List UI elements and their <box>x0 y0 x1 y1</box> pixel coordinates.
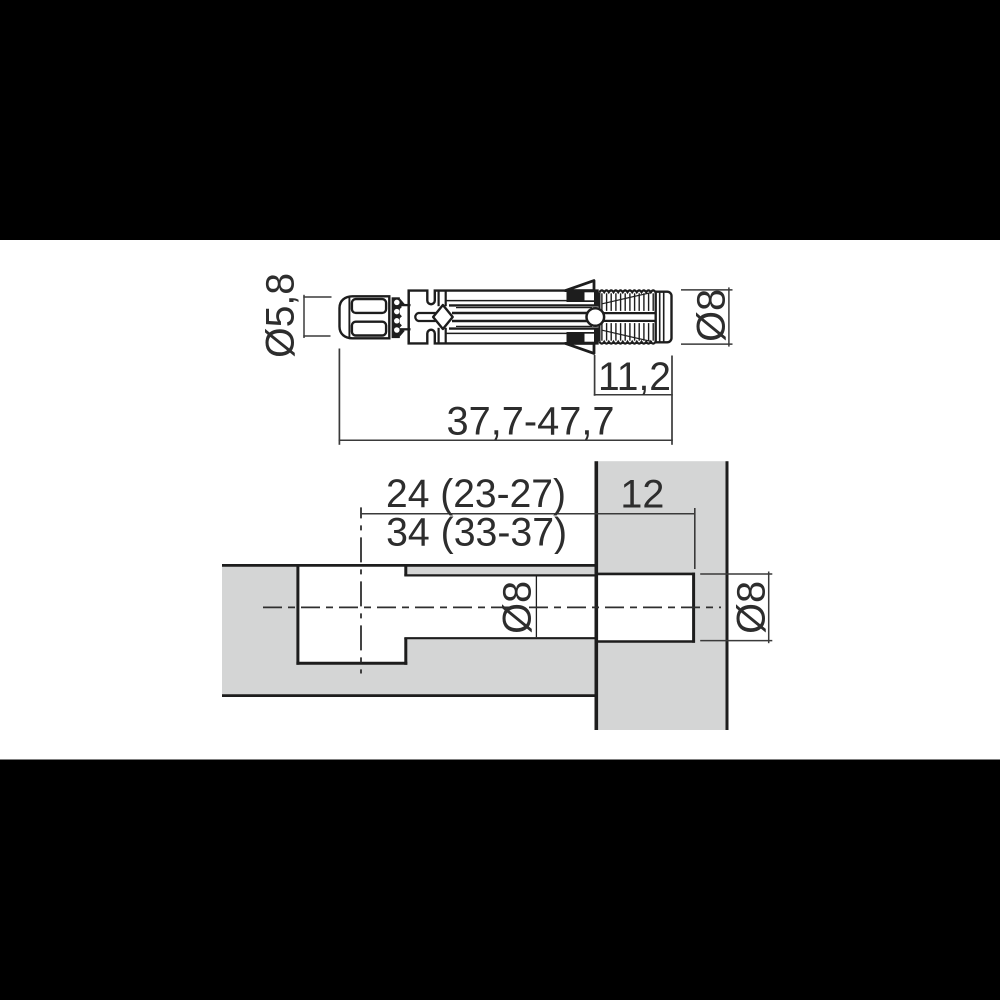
svg-text:11,2: 11,2 <box>598 355 671 399</box>
svg-text:24 (23-27): 24 (23-27) <box>386 472 566 516</box>
svg-text:Ø5,8: Ø5,8 <box>259 273 303 358</box>
svg-text:12: 12 <box>620 473 664 517</box>
svg-text:Ø8: Ø8 <box>690 289 734 342</box>
svg-text:37,7-47,7: 37,7-47,7 <box>447 399 615 443</box>
svg-text:Ø8: Ø8 <box>730 581 774 634</box>
svg-text:34 (33-37): 34 (33-37) <box>386 511 567 555</box>
svg-text:Ø8: Ø8 <box>496 581 540 634</box>
